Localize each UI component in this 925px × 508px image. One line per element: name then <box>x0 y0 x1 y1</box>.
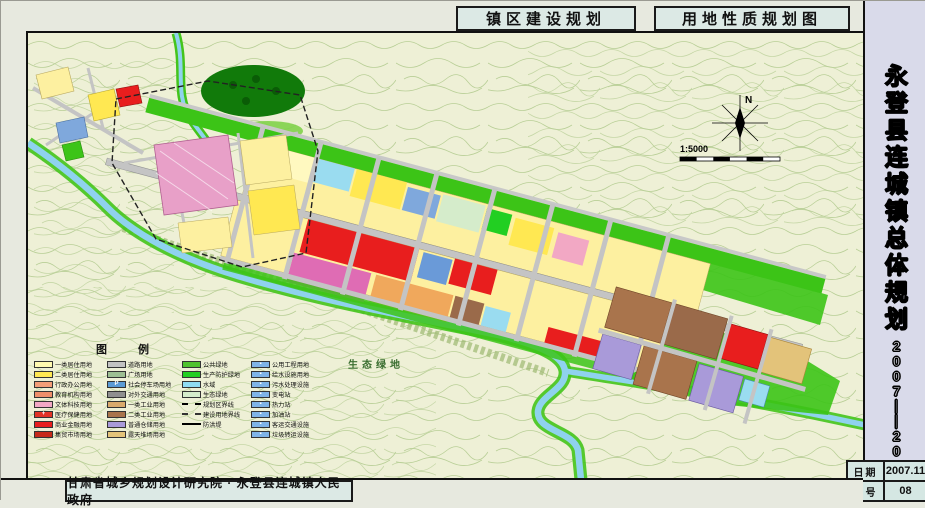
legend-swatch <box>34 381 53 388</box>
legend-item-label: 热力站 <box>272 399 291 409</box>
sidebar-char: — <box>889 400 904 414</box>
plan-title-right: 用地性质规划图 <box>654 6 850 31</box>
legend-item-label: 水域 <box>203 379 215 389</box>
legend-item-label: 医疗保健用地 <box>55 409 92 419</box>
north-label: N <box>745 95 752 106</box>
sidebar-char: 规 <box>885 279 908 306</box>
legend-item-label: 一类居住用地 <box>55 359 92 369</box>
legend-item: 二类居住用地 <box>34 370 103 378</box>
sidebar-vertical-title: 永登县连城镇总体规划 <box>885 63 908 333</box>
plan-title-right-label: 用地性质规划图 <box>682 8 822 29</box>
legend-item: 文体科技用地 <box>34 400 103 408</box>
legend-item: 生产防护绿地 <box>182 370 247 378</box>
legend-swatch: ▪ <box>251 411 270 418</box>
sidebar-char: 体 <box>885 252 908 279</box>
legend-swatch <box>34 431 53 438</box>
legend-swatch <box>107 431 126 438</box>
legend-item-label: 垃圾转运设施 <box>272 429 309 439</box>
credit-box: 甘肃省城乡规划设计研究院 · 永登县连城镇人民政府 <box>65 480 353 502</box>
legend-swatch: ▪ <box>251 431 270 438</box>
legend-item: P社会停车场用地 <box>107 380 178 388</box>
sidebar-title-panel: 永登县连城镇总体规划 2007——2020 <box>863 1 925 460</box>
legend-swatch <box>34 421 53 428</box>
legend-swatch <box>34 391 53 398</box>
legend-swatch <box>182 361 201 368</box>
legend-swatch: + <box>34 411 53 418</box>
legend-swatch <box>182 391 201 398</box>
legend-swatch <box>182 371 201 378</box>
sidebar-char: 2 <box>893 339 901 354</box>
scale-text: 1:5000 <box>680 144 708 154</box>
legend-item-label: 公用工程用地 <box>272 359 309 369</box>
legend-item-label: 文体科技用地 <box>55 399 92 409</box>
legend-swatch <box>182 381 201 388</box>
legend-item: 露天堆场用地 <box>107 430 178 438</box>
legend-swatch <box>182 423 201 425</box>
legend-item: 公共绿地 <box>182 360 247 368</box>
legend-swatch: ▪ <box>251 421 270 428</box>
legend-item: 规划区界线 <box>182 400 247 408</box>
sidebar-char: 0 <box>893 354 901 369</box>
legend-item-label: 一类工业用地 <box>128 399 165 409</box>
sheet-number-value-cell: 08 <box>883 480 925 502</box>
legend-item: ▪垃圾转运设施 <box>251 430 322 438</box>
legend-item: ▪变电站 <box>251 390 322 398</box>
legend-swatch <box>34 401 53 408</box>
legend-item: +医疗保健用地 <box>34 410 103 418</box>
legend-item: 教育机构用地 <box>34 390 103 398</box>
legend-item-label: 广场用地 <box>128 369 153 379</box>
legend-column: 公共绿地生产防护绿地水域生态绿地规划区界线建设用地界线防洪堤 <box>182 360 247 438</box>
legend-item: 一类工业用地 <box>107 400 178 408</box>
legend-item: 建设用地界线 <box>182 410 247 418</box>
legend-swatch: P <box>107 381 126 388</box>
legend-item-label: 规划区界线 <box>203 399 234 409</box>
legend-item: 二类工业用地 <box>107 410 178 418</box>
legend-item-label: 污水处理设施 <box>272 379 309 389</box>
legend-item-label: 加油站 <box>272 409 291 419</box>
legend-item-label: 行政办公用地 <box>55 379 92 389</box>
legend-swatch: ▪ <box>251 391 270 398</box>
legend-item-label: 变电站 <box>272 389 291 399</box>
legend-item: ▪污水处理设施 <box>251 380 322 388</box>
legend-item: 道路用地 <box>107 360 178 368</box>
legend-column: 道路用地广场用地P社会停车场用地对外交通用地一类工业用地二类工业用地普通仓储用地… <box>107 360 178 438</box>
sidebar-char: 县 <box>885 117 908 144</box>
sidebar-char: — <box>889 415 904 429</box>
legend-item-label: 建设用地界线 <box>203 409 240 419</box>
legend-item-label: 教育机构用地 <box>55 389 92 399</box>
sidebar-char: 总 <box>885 225 908 252</box>
date-value-cell: 2007.11 <box>883 460 925 482</box>
legend-item: 行政办公用地 <box>34 380 103 388</box>
legend-item: 水域 <box>182 380 247 388</box>
legend-item-label: 公共绿地 <box>203 359 228 369</box>
legend-item-label: 对外交通用地 <box>128 389 165 399</box>
legend-item: 商业金融用地 <box>34 420 103 428</box>
sidebar-char: 2 <box>893 429 901 444</box>
eco-area-label: 生态绿地 <box>348 358 404 371</box>
legend-title: 图 例 <box>96 341 322 357</box>
legend-column: ▪公用工程用地▪给水设施用地▪污水处理设施▪变电站▪热力站▪加油站▪客运交通设施… <box>251 360 322 438</box>
legend-swatch <box>107 421 126 428</box>
sidebar-char: 城 <box>885 171 908 198</box>
legend-swatch: ▪ <box>251 361 270 368</box>
legend-item-label: 生态绿地 <box>203 389 228 399</box>
sidebar-char: 镇 <box>885 198 908 225</box>
sidebar-char: 7 <box>893 384 901 399</box>
legend-swatch <box>182 403 201 405</box>
legend-swatch <box>182 413 201 415</box>
plan-title-left: 镇区建设规划 <box>456 6 636 31</box>
legend-swatch: ▪ <box>251 401 270 408</box>
legend-swatch: ▪ <box>251 371 270 378</box>
sidebar-char: 登 <box>885 90 908 117</box>
legend-column: 一类居住用地二类居住用地行政办公用地教育机构用地文体科技用地+医疗保健用地商业金… <box>34 360 103 438</box>
legend-item-label: 生产防护绿地 <box>203 369 240 379</box>
sidebar-char: 连 <box>885 144 908 171</box>
legend-item-label: 露天堆场用地 <box>128 429 165 439</box>
legend-item: 普通仓储用地 <box>107 420 178 428</box>
legend-item: 防洪堤 <box>182 420 247 428</box>
legend-item: 广场用地 <box>107 370 178 378</box>
legend-item-label: 防洪堤 <box>203 419 222 429</box>
scale-bar <box>680 157 780 161</box>
legend-swatch <box>107 411 126 418</box>
legend-item-label: 给水设施用地 <box>272 369 309 379</box>
legend-swatch <box>107 361 126 368</box>
plan-title-left-label: 镇区建设规划 <box>486 8 606 29</box>
sidebar-char: 0 <box>893 444 901 459</box>
plan-sheet: 镇区建设规划 用地性质规划图 <box>0 0 925 500</box>
legend-item-label: 客运交通设施 <box>272 419 309 429</box>
legend-item-label: 集贸市场用地 <box>55 429 92 439</box>
legend-item: ▪客运交通设施 <box>251 420 322 428</box>
sidebar-char: 0 <box>893 369 901 384</box>
legend-item: ▪给水设施用地 <box>251 370 322 378</box>
credit-text: 甘肃省城乡规划设计研究院 · 永登县连城镇人民政府 <box>67 474 351 508</box>
legend-item-label: 商业金融用地 <box>55 419 92 429</box>
legend: 图 例 一类居住用地二类居住用地行政办公用地教育机构用地文体科技用地+医疗保健用… <box>34 341 322 438</box>
legend-item: ▪加油站 <box>251 410 322 418</box>
legend-item-label: 二类居住用地 <box>55 369 92 379</box>
legend-item: 一类居住用地 <box>34 360 103 368</box>
legend-item: 对外交通用地 <box>107 390 178 398</box>
sidebar-char: 永 <box>885 63 908 90</box>
legend-swatch <box>107 391 126 398</box>
legend-item-label: 普通仓储用地 <box>128 419 165 429</box>
legend-swatch <box>34 361 53 368</box>
legend-item: 集贸市场用地 <box>34 430 103 438</box>
legend-swatch: ▪ <box>251 381 270 388</box>
legend-item-label: 道路用地 <box>128 359 153 369</box>
legend-item-label: 二类工业用地 <box>128 409 165 419</box>
legend-grid: 一类居住用地二类居住用地行政办公用地教育机构用地文体科技用地+医疗保健用地商业金… <box>34 360 322 438</box>
sidebar-char: 划 <box>885 306 908 333</box>
legend-item: 生态绿地 <box>182 390 247 398</box>
legend-swatch <box>107 371 126 378</box>
legend-swatch <box>107 401 126 408</box>
legend-item: ▪热力站 <box>251 400 322 408</box>
legend-item-label: 社会停车场用地 <box>128 379 171 389</box>
legend-swatch <box>34 371 53 378</box>
legend-item: ▪公用工程用地 <box>251 360 322 368</box>
